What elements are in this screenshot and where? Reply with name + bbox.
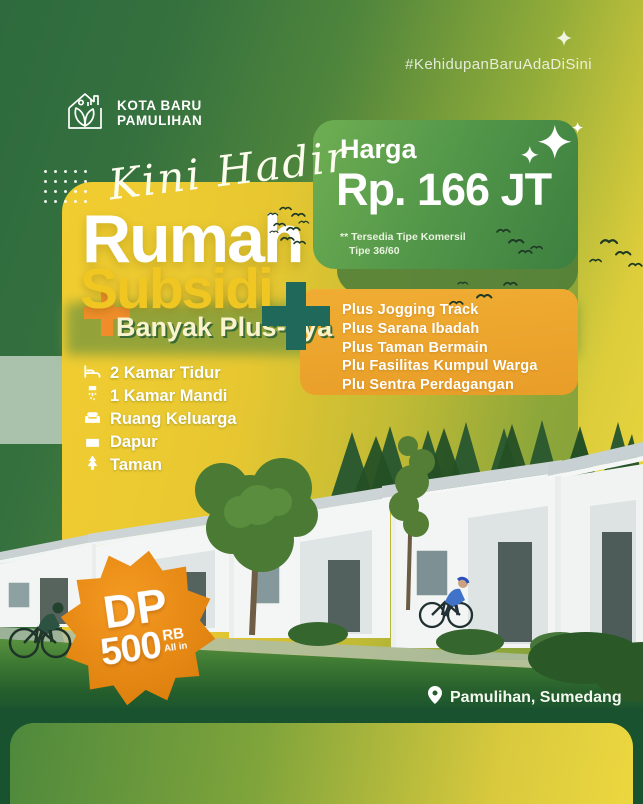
dp-amount: 500 xyxy=(98,626,163,672)
plus-item: Plu Fasilitas Kumpul Warga xyxy=(342,357,578,376)
plus-item: Plu Sentra Perdagangan xyxy=(342,376,578,395)
bed-icon xyxy=(84,363,101,385)
feature-list: 2 Kamar Tidur 1 Kamar Mandi Ruang Keluar… xyxy=(84,365,237,474)
house-leaf-logo-icon xyxy=(62,88,108,139)
tree-icon xyxy=(84,455,101,477)
feature-row: 1 Kamar Mandi xyxy=(84,388,237,405)
plus-item: Plus Jogging Track xyxy=(342,301,578,320)
price-note: ** Tersedia Tipe Komersil Tipe 36/60 xyxy=(340,231,466,258)
shower-icon xyxy=(84,386,101,408)
plus-item: Plus Taman Bermain xyxy=(342,339,578,358)
plus-teal-icon xyxy=(262,282,330,355)
feature-row: 2 Kamar Tidur xyxy=(84,365,237,382)
flyer-poster: #KehidupanBaruAdaDiSini KOTA BARU PAMULI… xyxy=(0,0,643,804)
plus-item: Plus Sarana Ibadah xyxy=(342,320,578,339)
price-label: Harga xyxy=(340,134,417,165)
price-value: Rp. 166 JT xyxy=(336,164,551,216)
kitchen-icon xyxy=(84,432,101,454)
bottom-gradient-card xyxy=(10,723,633,804)
location-row: Pamulihan, Sumedang xyxy=(428,686,622,709)
brand-logo: KOTA BARU PAMULIHAN xyxy=(62,88,202,139)
campaign-hashtag: #KehidupanBaruAdaDiSini xyxy=(352,56,592,73)
dots-pattern-decor xyxy=(44,170,87,203)
feature-row: Ruang Keluarga xyxy=(84,411,237,428)
dp-note: All in xyxy=(163,640,188,655)
plus-benefits-card: Plus Jogging Track Plus Sarana Ibadah Pl… xyxy=(300,289,578,395)
brand-name: KOTA BARU PAMULIHAN xyxy=(117,99,202,128)
feature-row: Taman xyxy=(84,457,237,474)
map-pin-icon xyxy=(428,686,442,709)
feature-row: Dapur xyxy=(84,434,237,451)
location-label: Pamulihan, Sumedang xyxy=(450,689,622,707)
sofa-icon xyxy=(84,409,101,431)
price-card: Harga Rp. 166 JT ** Tersedia Tipe Komers… xyxy=(313,120,578,269)
